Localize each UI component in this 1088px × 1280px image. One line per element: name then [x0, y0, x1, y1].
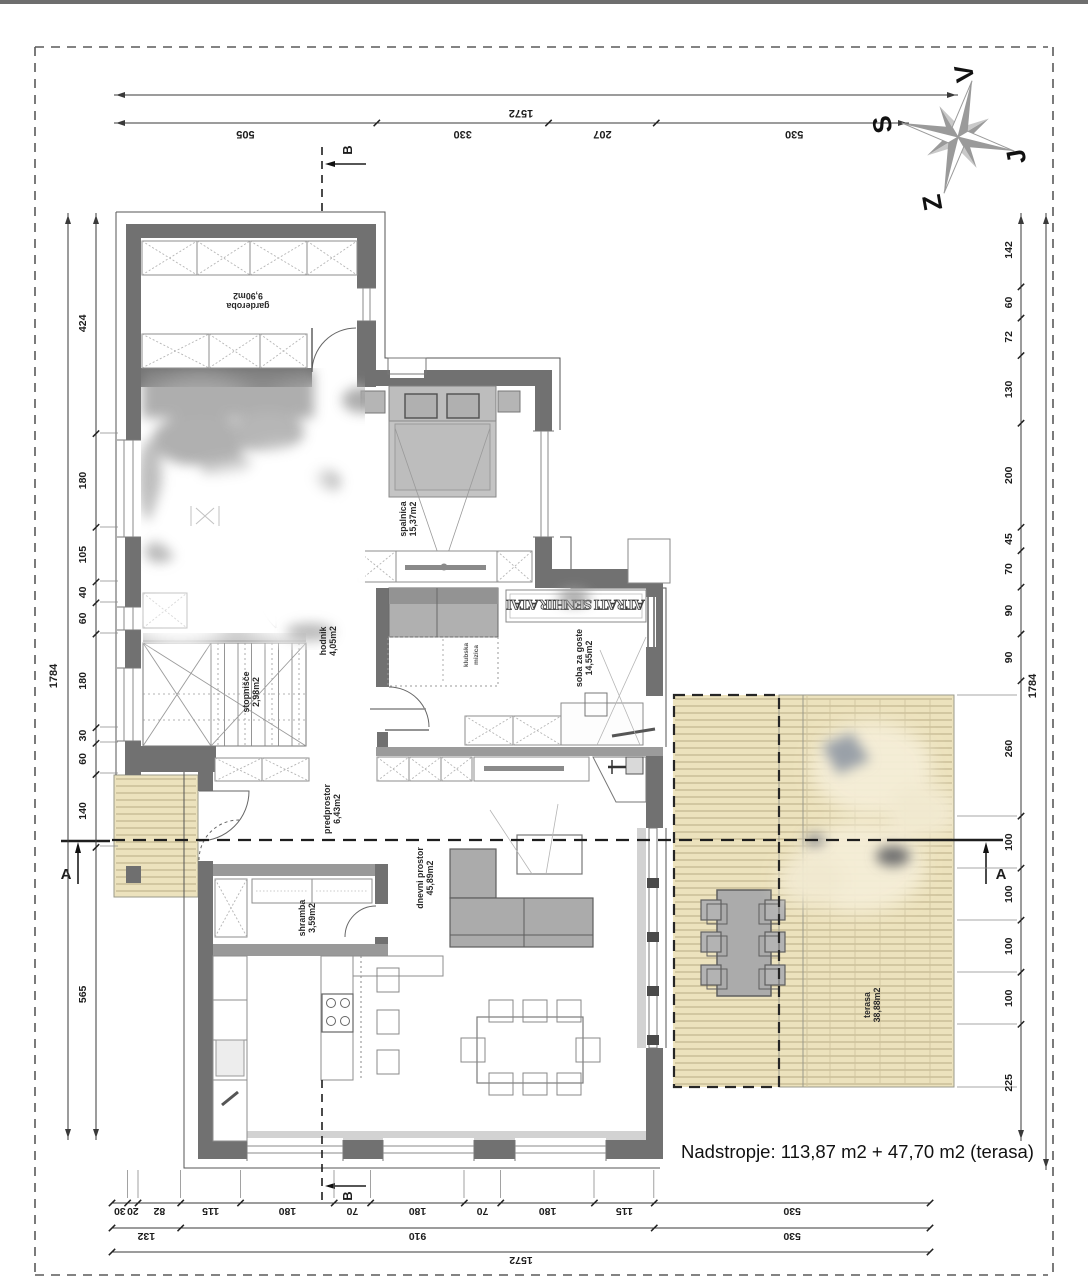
- svg-text:330: 330: [453, 128, 471, 140]
- svg-text:2,98m2: 2,98m2: [251, 677, 261, 707]
- svg-text:140: 140: [77, 802, 89, 820]
- svg-text:terasa: terasa: [862, 992, 872, 1018]
- svg-text:60: 60: [77, 753, 89, 765]
- svg-text:530: 530: [785, 128, 803, 140]
- svg-text:soba za goste: soba za goste: [574, 629, 584, 687]
- svg-text:70: 70: [1003, 563, 1015, 575]
- svg-text:1572: 1572: [509, 107, 533, 119]
- svg-text:spalnica: spalnica: [398, 501, 408, 536]
- svg-text:predprostor: predprostor: [322, 784, 332, 834]
- svg-text:180: 180: [77, 672, 89, 690]
- svg-text:100: 100: [1003, 989, 1015, 1007]
- svg-text:70: 70: [346, 1205, 358, 1217]
- svg-text:132: 132: [137, 1230, 155, 1242]
- svg-text:6,43m2: 6,43m2: [332, 794, 342, 824]
- svg-text:424: 424: [77, 314, 89, 332]
- svg-text:garderoba: garderoba: [226, 301, 269, 311]
- svg-text:115: 115: [616, 1205, 633, 1217]
- svg-text:115: 115: [202, 1205, 219, 1217]
- svg-text:82: 82: [153, 1205, 165, 1217]
- svg-text:72: 72: [1003, 331, 1015, 343]
- svg-text:60: 60: [1003, 297, 1015, 309]
- svg-text:14,55m2: 14,55m2: [584, 641, 594, 676]
- svg-text:4,05m2: 4,05m2: [328, 626, 338, 656]
- svg-text:40: 40: [77, 586, 89, 598]
- svg-text:hodnik: hodnik: [318, 626, 328, 655]
- svg-text:B: B: [340, 1191, 355, 1200]
- svg-text:180: 180: [409, 1205, 427, 1217]
- svg-text:70: 70: [477, 1205, 489, 1217]
- svg-text:260: 260: [1003, 740, 1015, 758]
- svg-text:530: 530: [783, 1230, 801, 1242]
- svg-text:1784: 1784: [48, 663, 60, 688]
- svg-text:B: B: [340, 145, 355, 154]
- svg-text:200: 200: [1003, 466, 1015, 484]
- svg-text:3,59m2: 3,59m2: [307, 903, 317, 933]
- svg-text:90: 90: [1003, 605, 1015, 617]
- svg-text:100: 100: [1003, 937, 1015, 955]
- svg-text:225: 225: [1003, 1074, 1015, 1092]
- svg-text:dnevni prostor: dnevni prostor: [415, 847, 425, 909]
- svg-text:90: 90: [1003, 651, 1015, 663]
- svg-text:45: 45: [1003, 533, 1015, 545]
- svg-text:30: 30: [77, 729, 89, 741]
- svg-text:142: 142: [1003, 241, 1015, 259]
- svg-text:530: 530: [783, 1205, 801, 1217]
- svg-text:60: 60: [77, 612, 89, 624]
- svg-text:505: 505: [236, 128, 254, 140]
- svg-text:stopnišče: stopnišče: [241, 671, 251, 712]
- svg-text:910: 910: [409, 1230, 427, 1242]
- svg-text:100: 100: [1003, 833, 1015, 851]
- svg-text:565: 565: [77, 985, 89, 1003]
- svg-text:180: 180: [539, 1205, 557, 1217]
- svg-text:180: 180: [278, 1205, 296, 1217]
- svg-text:100: 100: [1003, 885, 1015, 903]
- svg-text:A: A: [61, 866, 72, 883]
- svg-text:130: 130: [1003, 381, 1015, 399]
- svg-text:A: A: [996, 866, 1007, 883]
- svg-text:207: 207: [593, 128, 611, 140]
- svg-text:180: 180: [77, 472, 89, 490]
- svg-text:105: 105: [77, 546, 89, 564]
- svg-text:45,89m2: 45,89m2: [425, 861, 435, 896]
- svg-text:9,90m2: 9,90m2: [233, 291, 263, 301]
- svg-text:klubska: klubska: [463, 643, 470, 668]
- svg-text:38,88m2: 38,88m2: [872, 988, 882, 1023]
- svg-text:shramba: shramba: [297, 900, 307, 937]
- svg-text:15,37m2: 15,37m2: [408, 502, 418, 537]
- svg-text:20: 20: [127, 1205, 139, 1217]
- svg-text:1784: 1784: [1027, 673, 1039, 698]
- svg-text:Nadstropje: 113,87 m2 + 47,70: Nadstropje: 113,87 m2 + 47,70 m2 (terasa…: [681, 1141, 1034, 1162]
- svg-text:30: 30: [114, 1205, 126, 1217]
- svg-text:mizica: mizica: [473, 645, 480, 665]
- svg-text:1572: 1572: [509, 1254, 533, 1266]
